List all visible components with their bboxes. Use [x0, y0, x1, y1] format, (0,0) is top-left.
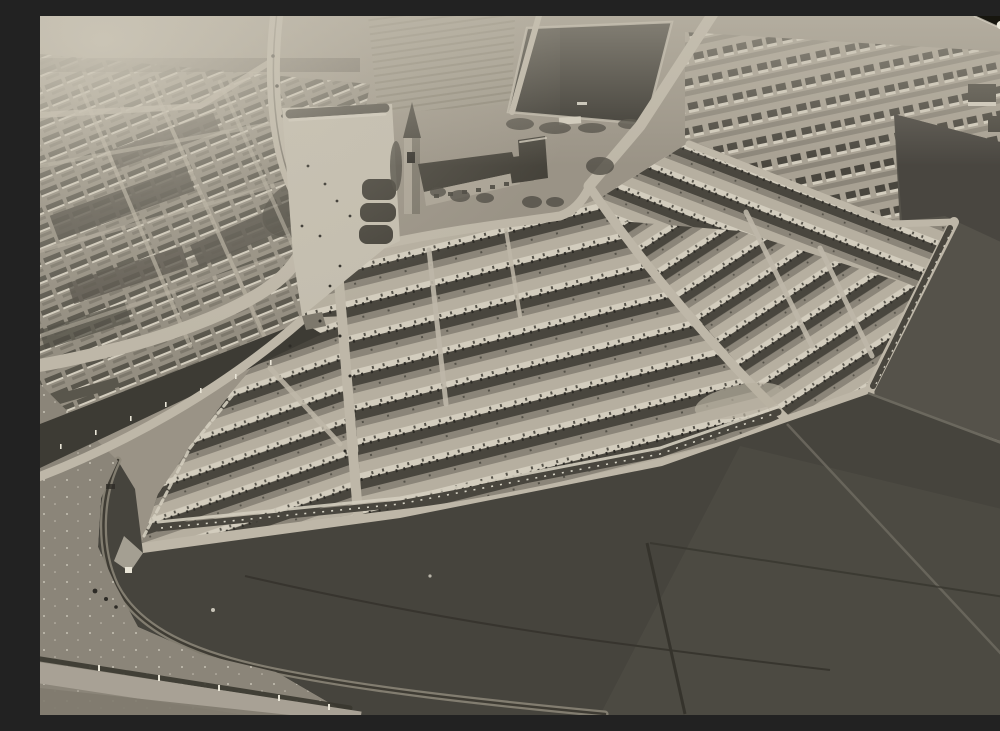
- aerial-photograph: [40, 16, 1000, 715]
- small-white-building: [125, 567, 132, 573]
- corner-haze: [40, 16, 560, 336]
- aerial-photograph-canvas: [40, 16, 1000, 715]
